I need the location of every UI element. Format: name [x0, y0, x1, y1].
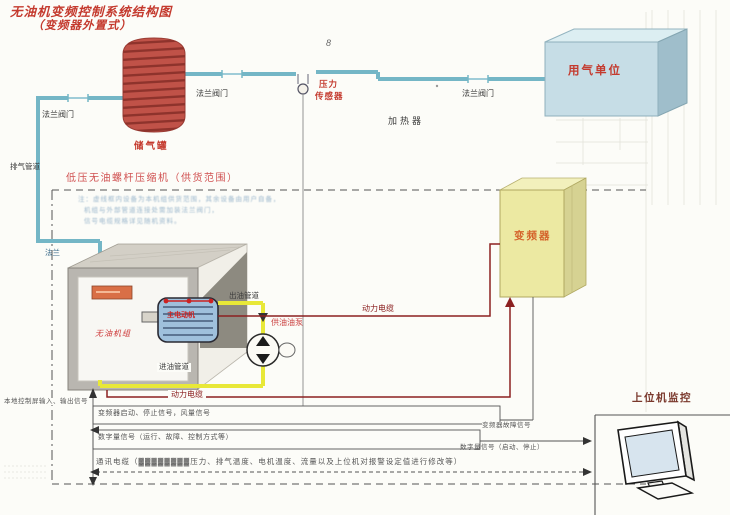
- valve-mid-label: 法兰阀门: [196, 89, 228, 98]
- motor-label: 主电动机: [167, 312, 195, 320]
- local-panel-io-label: 本地控制屏输入、输出信号: [4, 398, 88, 405]
- power-cable-top-label: 动力电缆: [362, 304, 394, 313]
- comm-cable-label: 通讯电缆（▓▓▓▓▓▓▓▓压力、排气温度、电机温度、流量以及上位机对报警设定值进…: [96, 458, 462, 467]
- exhaust-pipe-label: 排气管道: [10, 163, 40, 172]
- signal-digital-hostcmd-label: 数字量信号（启动、停止）: [460, 444, 544, 451]
- inverter-fault-label: 变频器故障信号: [482, 422, 531, 429]
- page-subtitle: （变频器外置式）: [32, 20, 132, 33]
- valve-right-label: 法兰阀门: [462, 89, 494, 98]
- scope-note-line-2: 机组与外部管道连接处需加装法兰阀门，: [84, 207, 219, 214]
- inverter-label: 变频器: [514, 230, 552, 242]
- air-pipes: [36, 72, 545, 268]
- oil-out-pipe-label: 出油管道: [229, 292, 259, 301]
- computer-monitor-icon: [618, 422, 694, 499]
- host-monitor-label: 上位机监控: [632, 392, 692, 404]
- handwritten-mark: 8: [326, 38, 331, 48]
- oil-flow-arrow: [258, 313, 268, 322]
- signal-digital-run-label: 数字量信号（运行、故障、控制方式等）: [98, 434, 233, 442]
- page-title: 无油机变频控制系统结构图: [10, 5, 172, 19]
- unit-panel-label: 无油机组: [95, 329, 131, 338]
- signal-start-stop-label: 变频器启动、停止信号，风量信号: [98, 410, 211, 418]
- oil-pump-icon: [247, 334, 295, 366]
- power-cable-bottom-label: 动力电缆: [168, 390, 206, 399]
- oil-in-pipe-label: 进油管道: [157, 363, 191, 372]
- scope-note-line-1: 注：虚线框内设备为本机组供货范围，其余设备由用户自备，: [78, 196, 281, 203]
- pressure-sensor-icon: [298, 74, 308, 406]
- storage-tank-icon: [120, 38, 188, 132]
- diagram-canvas: 无油机变频控制系统结构图 （变频器外置式） 法兰阀门 法兰阀门 法兰阀门 储气罐…: [0, 0, 730, 515]
- supply-scope-title: 低压无油螺杆压缩机（供货范围）: [66, 173, 239, 185]
- oil-pump-label: 供油油泵: [271, 318, 303, 327]
- gas-user-label: 用气单位: [568, 65, 622, 78]
- cable-arrow-into-inverter: [505, 297, 515, 307]
- flange-label: 法兰: [45, 249, 60, 258]
- valve-left-label: 法兰阀门: [42, 110, 74, 119]
- scan-speck: [436, 85, 438, 87]
- heater-label: 加热器: [388, 116, 424, 126]
- pressure-sensor-label-1: 压力: [319, 80, 338, 90]
- pressure-sensor-label-2: 传感器: [315, 92, 344, 102]
- storage-tank-label: 储气罐: [134, 142, 169, 153]
- scope-note-line-3: 信号电缆规格详见随机资料。: [84, 218, 182, 225]
